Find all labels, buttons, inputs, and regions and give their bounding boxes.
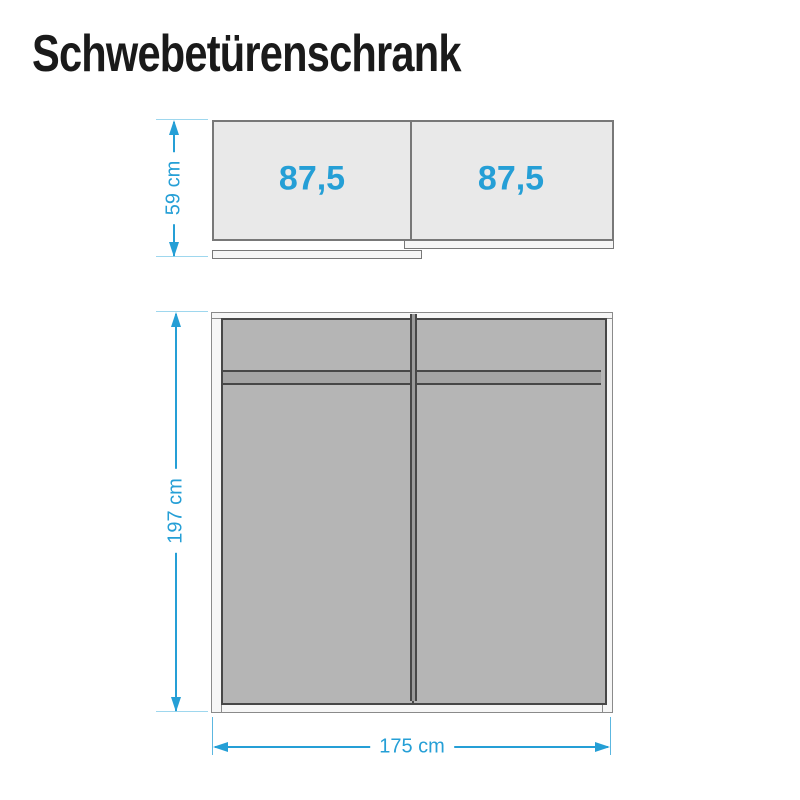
arrow-left-icon bbox=[213, 742, 228, 752]
right-compartment-width-label: 87,5 bbox=[478, 160, 544, 199]
arrow-down-icon bbox=[169, 242, 179, 257]
arrow-up-icon bbox=[169, 120, 179, 135]
dim-tick bbox=[156, 711, 208, 712]
arrow-up-icon bbox=[171, 312, 181, 327]
left-compartment-width-label: 87,5 bbox=[279, 160, 345, 199]
page-title: Schwebetürenschrank bbox=[32, 24, 461, 84]
height-dimension-label: 197 cm bbox=[163, 469, 190, 553]
depth-dimension-label: 59 cm bbox=[161, 152, 188, 224]
left-door-trim-band bbox=[223, 370, 410, 385]
right-door-trim-band bbox=[414, 370, 601, 385]
arrow-right-icon bbox=[595, 742, 610, 752]
width-dimension-label: 175 cm bbox=[370, 736, 454, 759]
dim-tick bbox=[156, 119, 208, 120]
dim-tick bbox=[156, 256, 208, 257]
arrow-down-icon bbox=[171, 697, 181, 712]
plan-right-sliding-door bbox=[404, 240, 614, 249]
center-door-divider bbox=[410, 314, 417, 701]
dim-extension-line bbox=[610, 717, 611, 755]
dim-tick bbox=[156, 311, 208, 312]
wardrobe-dimension-diagram: Schwebetürenschrank 59 cm 87,5 87,5 197 … bbox=[0, 0, 800, 800]
plan-left-sliding-door bbox=[212, 250, 422, 259]
